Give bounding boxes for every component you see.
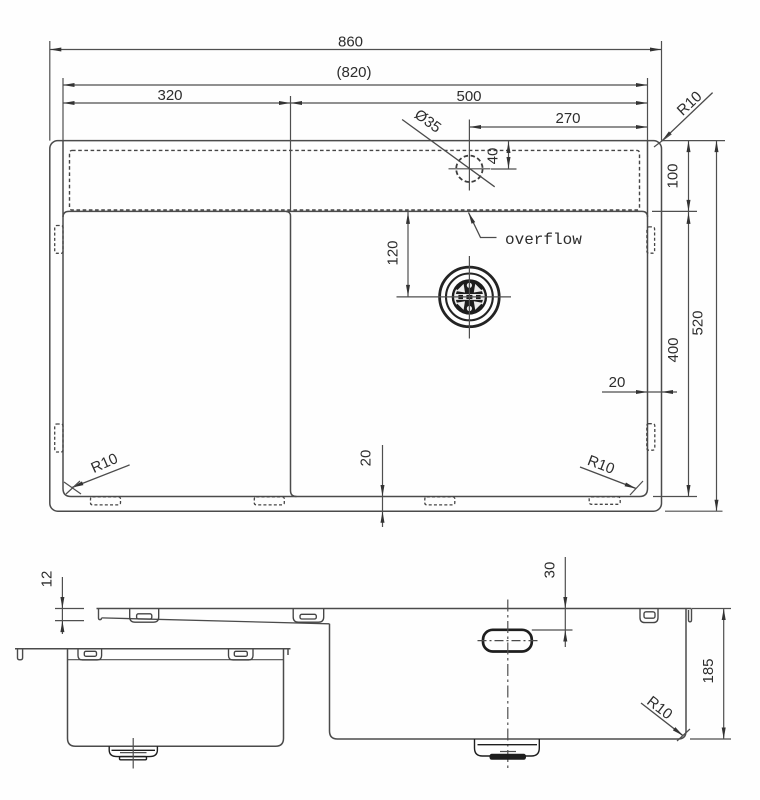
svg-text:40: 40 [485, 148, 502, 165]
svg-text:overflow: overflow [505, 231, 582, 249]
svg-text:30: 30 [542, 562, 559, 579]
svg-text:(820): (820) [336, 64, 371, 81]
svg-text:R10: R10 [585, 452, 617, 478]
svg-text:20: 20 [358, 450, 375, 467]
svg-text:860: 860 [338, 34, 363, 51]
svg-text:120: 120 [385, 240, 402, 265]
svg-text:185: 185 [700, 658, 717, 683]
svg-text:400: 400 [665, 337, 682, 362]
svg-text:20: 20 [609, 374, 626, 391]
svg-text:500: 500 [456, 88, 481, 105]
svg-text:12: 12 [39, 571, 56, 588]
svg-text:320: 320 [157, 87, 182, 104]
svg-text:R10: R10 [674, 88, 706, 119]
svg-text:R10: R10 [643, 693, 675, 723]
svg-text:R10: R10 [88, 450, 120, 477]
svg-text:100: 100 [665, 163, 682, 188]
svg-text:270: 270 [555, 110, 580, 127]
svg-text:Ø35: Ø35 [411, 106, 444, 136]
svg-text:520: 520 [690, 310, 707, 335]
